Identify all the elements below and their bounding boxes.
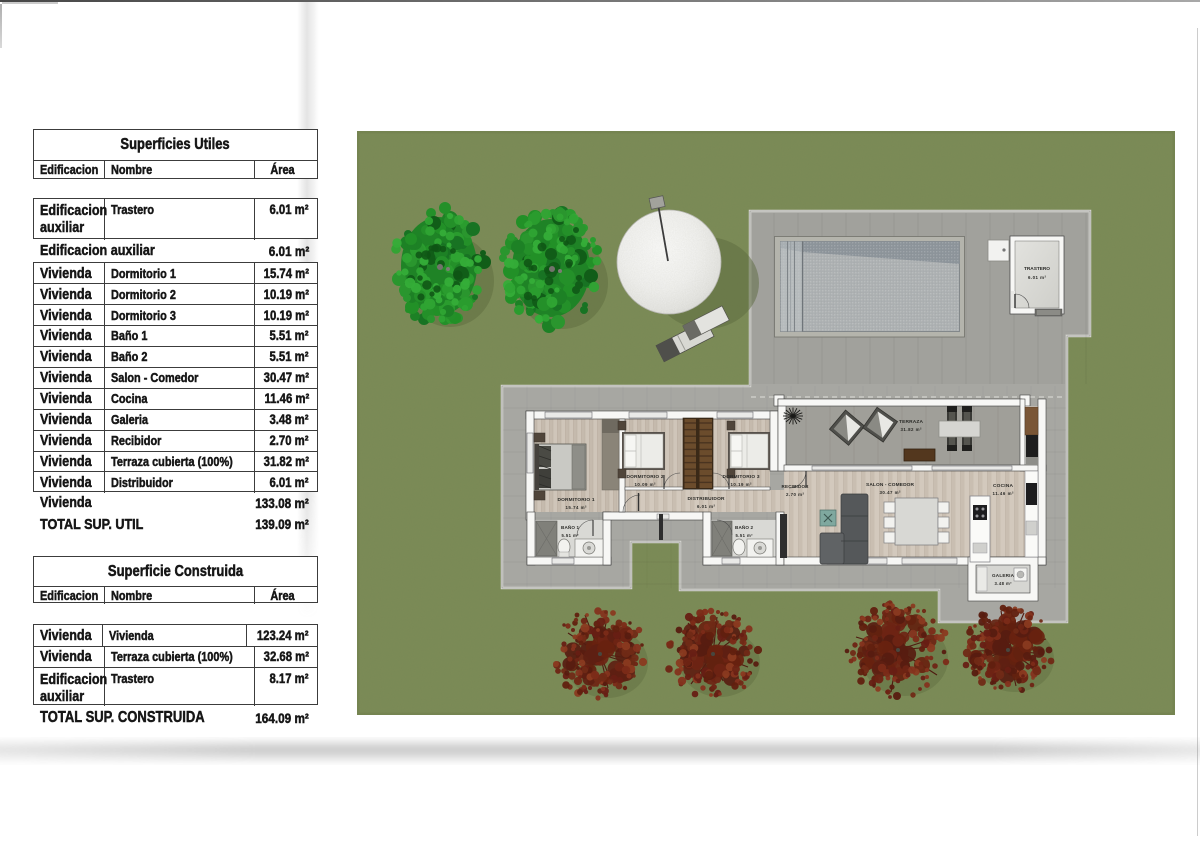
svg-text:BAÑO 1: BAÑO 1 [561, 524, 579, 530]
svg-text:10.19 m²: 10.19 m² [731, 482, 753, 487]
svg-text:SALON - COMEDOR: SALON - COMEDOR [866, 482, 915, 488]
svg-text:15.74 m²: 15.74 m² [566, 505, 588, 510]
svg-text:DORMITORIO 3: DORMITORIO 3 [723, 474, 760, 480]
svg-text:COCINA: COCINA [993, 483, 1014, 489]
svg-text:TRASTERO: TRASTERO [1024, 266, 1050, 272]
svg-text:5.51 m²: 5.51 m² [562, 533, 580, 538]
svg-text:5.51 m²: 5.51 m² [736, 533, 754, 538]
svg-text:10.09 m²: 10.09 m² [635, 482, 657, 487]
svg-text:31.82 m²: 31.82 m² [901, 427, 923, 432]
svg-text:30.47 m²: 30.47 m² [880, 490, 902, 495]
svg-text:6.01 m²: 6.01 m² [1028, 275, 1047, 280]
svg-text:RECIBIDOR: RECIBIDOR [782, 484, 810, 489]
svg-text:DISTRIBUIDOR: DISTRIBUIDOR [688, 496, 726, 502]
svg-text:11.46 m²: 11.46 m² [993, 491, 1015, 496]
svg-text:3.48 m²: 3.48 m² [995, 581, 1013, 586]
svg-text:DORMITORIO 1: DORMITORIO 1 [558, 497, 595, 503]
svg-text:DORMITORIO 2: DORMITORIO 2 [627, 474, 664, 480]
svg-text:BAÑO 2: BAÑO 2 [735, 524, 753, 530]
svg-text:GALERIA: GALERIA [992, 573, 1015, 578]
svg-text:2.70 m²: 2.70 m² [786, 492, 805, 497]
svg-text:TERRAZA: TERRAZA [899, 419, 924, 425]
svg-text:6.01 m²: 6.01 m² [697, 504, 716, 509]
